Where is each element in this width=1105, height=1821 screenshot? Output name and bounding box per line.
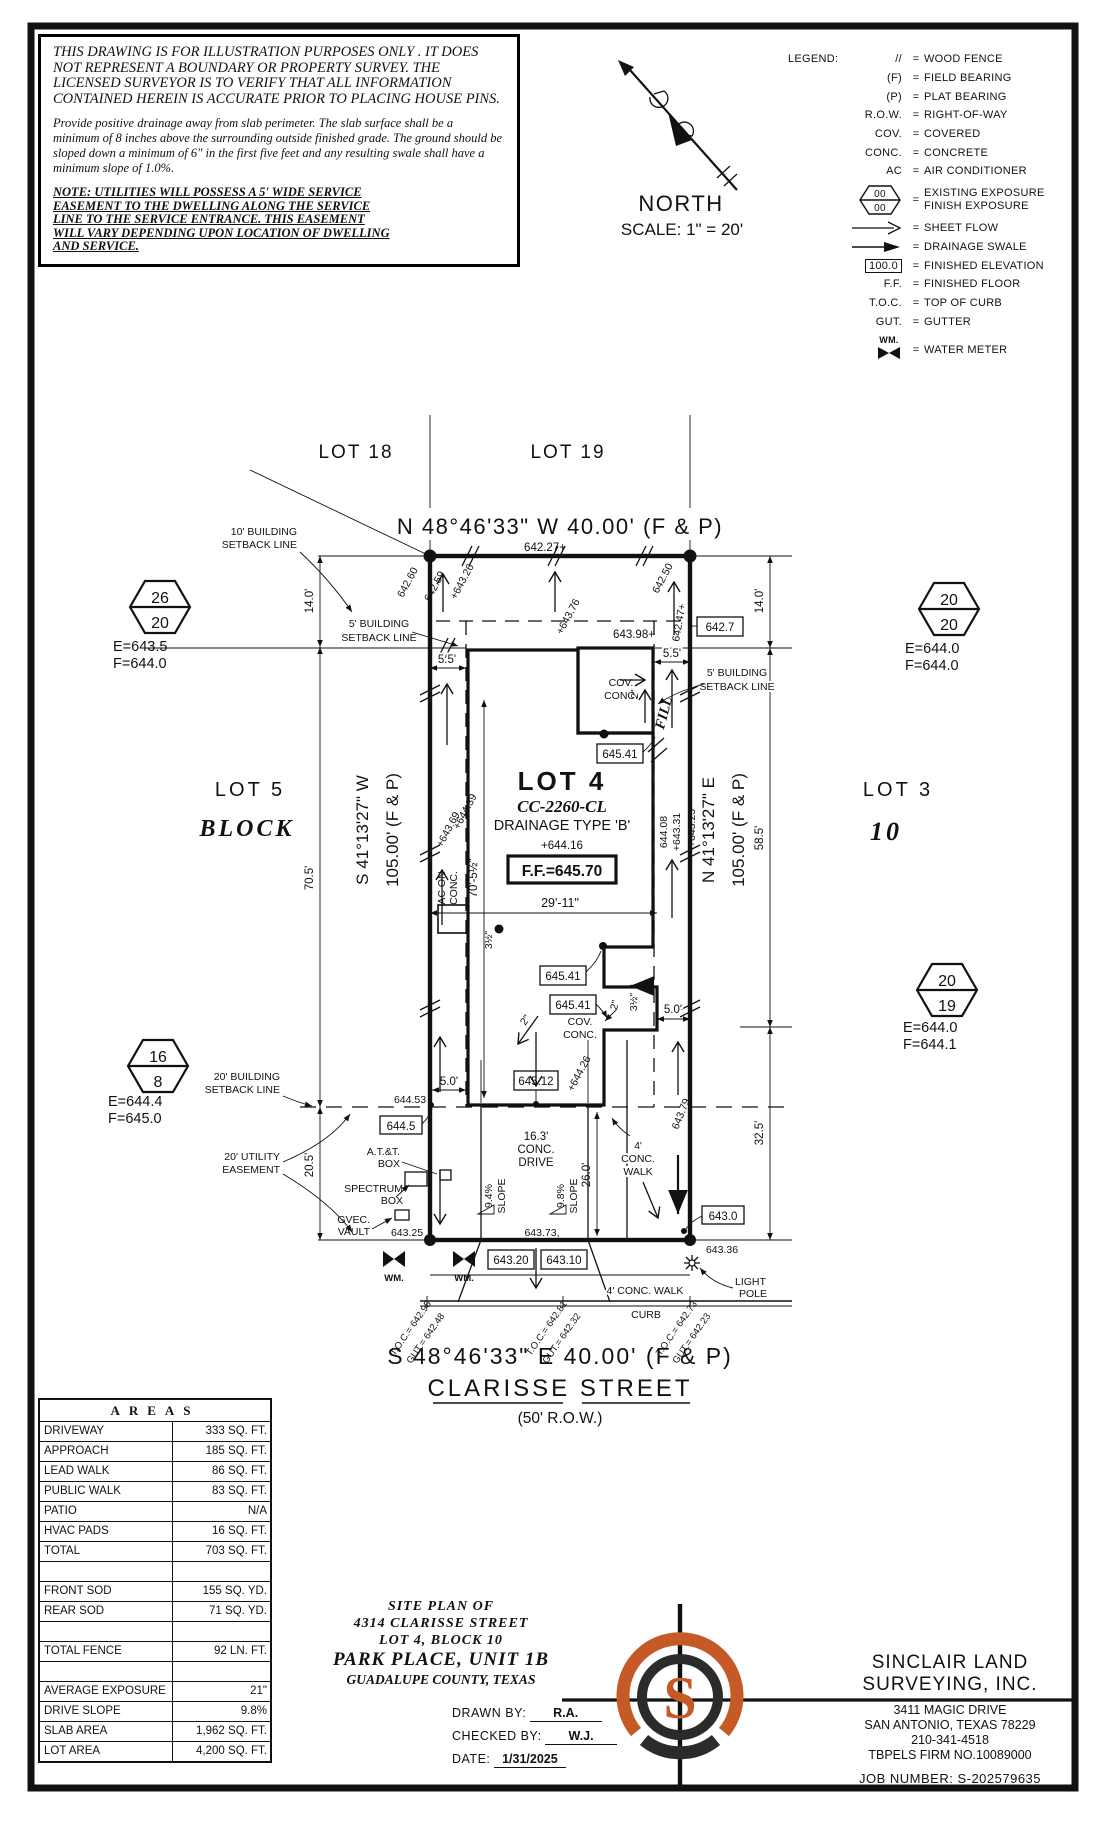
hex4-top: 20 bbox=[938, 973, 956, 990]
hex2-bottom: 20 bbox=[940, 617, 958, 634]
table-row-blank-2 bbox=[40, 1622, 270, 1642]
disclaimer-paragraph-1: THIS DRAWING IS FOR ILLUSTRATION PURPOSE… bbox=[53, 45, 507, 107]
hex1-bottom: 20 bbox=[151, 615, 169, 632]
block-word: BLOCK bbox=[198, 816, 294, 842]
table-row-average-exposure: AVERAGE EXPOSURE21" bbox=[40, 1682, 270, 1702]
gutter-symbol: GUT. bbox=[836, 316, 908, 328]
elev-642-7: 642.7 bbox=[706, 622, 735, 634]
surveyor-name: SINCLAIR LAND SURVEYING, INC. bbox=[828, 1652, 1072, 1696]
table-row-hvac-pads: HVAC PADS16 SQ. FT. bbox=[40, 1522, 270, 1542]
legend-row-plat-bearing: (P) = PLAT BEARING bbox=[788, 87, 1088, 106]
equals: = bbox=[908, 165, 924, 177]
table-row-front-sod: FRONT SOD155 SQ. YD. bbox=[40, 1582, 270, 1602]
legend-title: LEGEND: bbox=[788, 53, 836, 65]
legend-row-top-of-curb: T.O.C. = TOP OF CURB bbox=[788, 294, 1088, 313]
date-value: 1/31/2025 bbox=[494, 1752, 566, 1768]
dim-32-5: 32.5' bbox=[754, 1121, 766, 1146]
slope-98: 9.8% bbox=[555, 1184, 567, 1208]
lot3-label: LOT 3 bbox=[863, 779, 933, 801]
hex1-existing: E=643.5 bbox=[113, 639, 167, 655]
inch35-front: 3½" bbox=[628, 993, 640, 1012]
street-row: (50' R.O.W.) bbox=[518, 1410, 603, 1427]
block-number: 10 bbox=[870, 817, 902, 846]
table-row-blank-1 bbox=[40, 1562, 270, 1582]
drainage-swale-icon bbox=[836, 241, 908, 253]
att-line1: A.T.&T. bbox=[367, 1146, 400, 1158]
bearing-left-dir: S 41°13'27" W bbox=[353, 775, 372, 885]
elev-643-26: +643.26 bbox=[448, 562, 477, 602]
elev-643-76: +643.76 bbox=[554, 597, 583, 637]
equals: = bbox=[908, 91, 924, 103]
bearing-left-len: 105.00' (F & P) bbox=[383, 773, 402, 887]
elev-644-5: 644.5 bbox=[387, 1121, 416, 1133]
water-meter-2: WM. bbox=[454, 1273, 474, 1284]
street-name: CLARISSE STREET bbox=[427, 1375, 692, 1402]
elev-643-0: 643.0 bbox=[709, 1211, 738, 1223]
elev-643-20: 643.20 bbox=[493, 1255, 528, 1267]
gvec-line2: VAULT bbox=[338, 1226, 371, 1238]
areas-title: AREAS bbox=[40, 1400, 270, 1422]
ac-conc-label: CONC. bbox=[448, 871, 460, 905]
utility20-line2: EASEMENT bbox=[222, 1164, 280, 1176]
svg-text:00: 00 bbox=[874, 189, 886, 200]
title-line1: SITE PLAN OF bbox=[318, 1598, 564, 1615]
concrete-symbol: CONC. bbox=[836, 147, 908, 159]
legend-row-ac: AC = AIR CONDITIONER bbox=[788, 162, 1088, 181]
walk-conc: CONC. bbox=[621, 1153, 655, 1165]
surveyor-city: SAN ANTONIO, TEXAS 78229 bbox=[828, 1718, 1072, 1733]
cov-label-rear: COV. bbox=[609, 677, 634, 689]
dim-70-5: 70.5' bbox=[304, 866, 316, 891]
table-row-total: TOTAL703 SQ. FT. bbox=[40, 1542, 270, 1562]
elev-643-73: 643.73, bbox=[524, 1227, 559, 1239]
equals: = bbox=[908, 241, 924, 253]
title-lot-block: LOT 4, BLOCK 10 bbox=[318, 1632, 564, 1649]
elev-642-27: 642.27+ bbox=[524, 542, 566, 554]
dim-5-5-right: 5.5' bbox=[663, 648, 681, 660]
elev-644-53: 644.53 bbox=[394, 1094, 426, 1106]
dim-5-0-left: 5.0' bbox=[440, 1076, 458, 1088]
dim-5-0-right: 5.0' bbox=[664, 1004, 682, 1016]
water-meter-1: WM. bbox=[384, 1273, 404, 1284]
drive-label: DRIVE bbox=[518, 1157, 553, 1169]
row-symbol: R.O.W. bbox=[836, 109, 908, 121]
table-row-drive-slope: DRIVE SLOPE9.8% bbox=[40, 1702, 270, 1722]
legend-row-sheet-flow: = SHEET FLOW bbox=[788, 219, 1088, 238]
checked-by-value: W.J. bbox=[545, 1729, 617, 1745]
drawn-by-value: R.A. bbox=[530, 1706, 602, 1722]
walk-4ft: 4' bbox=[634, 1140, 642, 1152]
drawn-by-row: DRAWN BY: R.A. bbox=[452, 1706, 642, 1722]
disclaimer-note: NOTE: UTILITIES WILL POSSESS A 5' WIDE S… bbox=[53, 186, 507, 254]
date-row: DATE: 1/31/2025 bbox=[452, 1752, 642, 1768]
gvec-line1: GVEC. bbox=[337, 1214, 370, 1226]
ac-symbol: AC bbox=[836, 165, 908, 177]
table-row-driveway: DRIVEWAY333 SQ. FT. bbox=[40, 1422, 270, 1442]
hex2-finish: F=644.0 bbox=[905, 658, 959, 674]
job-number: JOB NUMBER: S-202579635 bbox=[828, 1771, 1072, 1786]
slope-word-2: SLOPE bbox=[568, 1178, 580, 1213]
setback10-line1: 10' BUILDING bbox=[231, 526, 297, 538]
legend-row-finished-floor: F.F. = FINISHED FLOOR bbox=[788, 275, 1088, 294]
slope-94: 9.4% bbox=[483, 1184, 495, 1208]
water-meter-icon: WM. bbox=[836, 335, 908, 364]
disclaimer-paragraph-2: Provide positive drainage away from slab… bbox=[53, 116, 507, 176]
setback20-line1: 20' BUILDING bbox=[214, 1071, 280, 1083]
drainage-type-label: DRAINAGE TYPE 'B' bbox=[494, 818, 631, 834]
wood-fence-symbol: // bbox=[836, 53, 908, 65]
sheet-flow-icon bbox=[836, 221, 908, 235]
curb-label: CURB bbox=[631, 1309, 661, 1321]
title-block: SITE PLAN OF 4314 CLARISSE STREET LOT 4,… bbox=[318, 1598, 564, 1689]
table-row-patio: PATION/A bbox=[40, 1502, 270, 1522]
surveyor-firm: TBPELS FIRM NO.10089000 bbox=[828, 1748, 1072, 1763]
disclaimer-box: THIS DRAWING IS FOR ILLUSTRATION PURPOSE… bbox=[38, 34, 520, 267]
hex1-finish: F=644.0 bbox=[113, 656, 167, 672]
exposure-values: 26 20 E=643.5 F=644.0 20 20 E=644.0 F=64… bbox=[108, 590, 959, 1127]
dim-58-5: 58.5' bbox=[754, 826, 766, 851]
lot5-label: LOT 5 bbox=[215, 779, 285, 801]
hex3-finish: F=645.0 bbox=[108, 1111, 162, 1127]
table-row-total-fence: TOTAL FENCE92 LN. FT. bbox=[40, 1642, 270, 1662]
elev-642-60: 642.60 bbox=[395, 565, 421, 599]
elev-644-39: +644.39 bbox=[451, 792, 480, 832]
dim-29-11: 29'-11" bbox=[541, 896, 579, 910]
elev-643-31: +643.31 bbox=[671, 813, 683, 851]
hex3-bottom: 8 bbox=[154, 1074, 163, 1091]
spectrum-line1: SPECTRUM bbox=[344, 1183, 403, 1195]
dim-14-left: 14.0' bbox=[304, 589, 316, 614]
elev-643-25r: +643.25 bbox=[686, 809, 698, 847]
covered-symbol: COV. bbox=[836, 128, 908, 140]
equals: = bbox=[908, 147, 924, 159]
elev-644-26: +644.26 bbox=[565, 1054, 594, 1094]
bearing-top: N 48°46'33" W 40.00' (F & P) bbox=[397, 514, 723, 539]
table-row-blank-3 bbox=[40, 1662, 270, 1682]
light-line2: POLE bbox=[739, 1288, 767, 1300]
setback5-right-line1: 5' BUILDING bbox=[707, 667, 767, 679]
hex1-top: 26 bbox=[151, 590, 169, 607]
pad-elevation: +644.16 bbox=[541, 840, 583, 852]
north-label: NORTH bbox=[638, 191, 723, 216]
dim-14-right: 14.0' bbox=[754, 589, 766, 614]
elev-642-50: 642.50 bbox=[650, 561, 676, 595]
exposure-hexagon-icon: 00 00 bbox=[836, 183, 908, 217]
legend-row-field-bearing: (F) = FIELD BEARING bbox=[788, 69, 1088, 88]
legend: LEGEND: // = WOOD FENCE (F) = FIELD BEAR… bbox=[788, 50, 1088, 369]
finished-floor-label: F.F.=645.70 bbox=[522, 863, 603, 880]
dimension-labels: 14.0' 70.5' 20.5' 14.0' 58.5' 32.5' 5.5'… bbox=[304, 589, 766, 1188]
cov-label-front: COV. bbox=[568, 1016, 593, 1028]
equals: = bbox=[908, 278, 924, 290]
setback20-line2: SETBACK LINE bbox=[205, 1084, 280, 1096]
dim-26-0: 26.0' bbox=[581, 1163, 593, 1188]
legend-row-drainage-swale: = DRAINAGE SWALE bbox=[788, 238, 1088, 257]
legend-row-covered: COV. = COVERED bbox=[788, 125, 1088, 144]
elev-645-41-c: 645.41 bbox=[555, 1000, 590, 1012]
hex4-bottom: 19 bbox=[938, 998, 956, 1015]
legend-row-row: R.O.W. = RIGHT-OF-WAY bbox=[788, 106, 1088, 125]
lot4-label: LOT 4 bbox=[518, 766, 607, 796]
att-line2: BOX bbox=[378, 1158, 400, 1170]
elev-644-08: 644.08 bbox=[658, 816, 670, 848]
setback5-right-line2: SETBACK LINE bbox=[699, 681, 774, 693]
table-row-lead-walk: LEAD WALK86 SQ. FT. bbox=[40, 1462, 270, 1482]
equals: = bbox=[908, 260, 924, 272]
title-county: GUADALUPE COUNTY, TEXAS bbox=[318, 1671, 564, 1689]
equals: = bbox=[908, 72, 924, 84]
surveyor-street: 3411 MAGIC DRIVE bbox=[828, 1703, 1072, 1718]
dim-5-5-left: 5.5' bbox=[438, 654, 456, 666]
setback5-left-line2: SETBACK LINE bbox=[341, 632, 416, 644]
inch2-rear: 2" bbox=[629, 689, 641, 699]
elev-643-10: 643.10 bbox=[546, 1255, 581, 1267]
title-subdivision: PARK PLACE, UNIT 1B bbox=[318, 1649, 564, 1671]
finished-elevation-symbol: 100.0 bbox=[836, 260, 908, 272]
spectrum-line2: BOX bbox=[381, 1195, 403, 1207]
legend-row-gutter: GUT. = GUTTER bbox=[788, 312, 1088, 331]
equals: = bbox=[908, 222, 924, 234]
bearing-right-len: 105.00' (F & P) bbox=[729, 773, 748, 887]
conc-label-front: CONC. bbox=[563, 1029, 597, 1041]
street-walk-label: 4' CONC. WALK bbox=[607, 1285, 684, 1297]
svg-text:00: 00 bbox=[874, 203, 886, 214]
lot18-label: LOT 18 bbox=[318, 442, 393, 463]
bearing-right-dir: N 41°13'27" E bbox=[699, 777, 718, 883]
field-bearing-symbol: (F) bbox=[836, 72, 908, 84]
equals: = bbox=[908, 344, 924, 356]
light-line1: LIGHT bbox=[735, 1276, 767, 1288]
equals: = bbox=[908, 53, 924, 65]
inch2-front: 2" bbox=[608, 999, 622, 1012]
equals: = bbox=[908, 297, 924, 309]
legend-row-water-meter: WM. = WATER METER bbox=[788, 331, 1088, 369]
legend-row-finished-elevation: 100.0 = FINISHED ELEVATION bbox=[788, 256, 1088, 275]
table-row-rear-sod: REAR SOD71 SQ. YD. bbox=[40, 1602, 270, 1622]
ff-symbol: F.F. bbox=[836, 278, 908, 290]
table-row-lot-area: LOT AREA4,200 SQ. FT. bbox=[40, 1742, 270, 1761]
equals: = bbox=[908, 194, 924, 206]
scale-label: SCALE: 1" = 20' bbox=[621, 220, 743, 239]
table-row-approach: APPROACH185 SQ. FT. bbox=[40, 1442, 270, 1462]
logo-letter: S bbox=[663, 1665, 696, 1731]
slope-word-1: SLOPE bbox=[496, 1178, 508, 1213]
elev-643-25: 643.25 bbox=[391, 1227, 423, 1239]
legend-row-wood-fence: LEGEND: // = WOOD FENCE bbox=[788, 50, 1088, 69]
title-address: 4314 CLARISSE STREET bbox=[318, 1615, 564, 1632]
drawn-by-block: DRAWN BY: R.A. CHECKED BY: W.J. DATE: 1/… bbox=[452, 1706, 642, 1775]
hex4-finish: F=644.1 bbox=[903, 1037, 957, 1053]
plan-id-label: CC-2260-CL bbox=[517, 797, 607, 816]
elev-643-98: 643.98+ bbox=[613, 629, 655, 641]
equals: = bbox=[908, 109, 924, 121]
toc-symbol: T.O.C. bbox=[836, 297, 908, 309]
elev-642-47: 642.47+ bbox=[670, 603, 688, 643]
dim-20-5: 20.5' bbox=[304, 1153, 316, 1178]
plat-bearing-symbol: (P) bbox=[836, 91, 908, 103]
north-arrow-icon: NORTH SCALE: 1" = 20' bbox=[618, 60, 743, 239]
equals: = bbox=[908, 128, 924, 140]
walk-word: WALK bbox=[623, 1166, 652, 1178]
legend-row-concrete: CONC. = CONCRETE bbox=[788, 143, 1088, 162]
flow-arrows bbox=[440, 572, 678, 1288]
hex3-existing: E=644.4 bbox=[108, 1094, 162, 1110]
legend-row-exposure: 00 00 = EXISTING EXPOSURE FINISH EXPOSUR… bbox=[788, 181, 1088, 219]
checked-by-row: CHECKED BY: W.J. bbox=[452, 1729, 642, 1745]
setback10-line2: SETBACK LINE bbox=[222, 539, 297, 551]
elev-645-41-a: 645.41 bbox=[602, 749, 637, 761]
drive-conc-label: CONC. bbox=[517, 1144, 554, 1156]
hex3-top: 16 bbox=[149, 1049, 167, 1066]
dim-70-5h: 70'-5½" bbox=[468, 859, 480, 898]
surveyor-phone: 210-341-4518 bbox=[828, 1733, 1072, 1748]
table-row-slab-area: SLAB AREA1,962 SQ. FT. bbox=[40, 1722, 270, 1742]
hex2-top: 20 bbox=[940, 592, 958, 609]
table-row-public-walk: PUBLIC WALK83 SQ. FT. bbox=[40, 1482, 270, 1502]
elev-642-59: 642.59 bbox=[422, 569, 448, 603]
elev-643-36: 643.36 bbox=[706, 1244, 738, 1256]
lot19-label: LOT 19 bbox=[530, 442, 605, 463]
elev-645-41-b: 645.41 bbox=[545, 971, 580, 983]
surveyor-address: 3411 MAGIC DRIVE SAN ANTONIO, TEXAS 7822… bbox=[828, 1703, 1072, 1763]
drive-width-label: 16.3' bbox=[524, 1131, 549, 1143]
inch35-step: 3½" bbox=[483, 931, 495, 950]
hex2-existing: E=644.0 bbox=[905, 641, 959, 657]
site-plan-sheet: NORTH SCALE: 1" = 20' bbox=[0, 0, 1105, 1821]
hex4-existing: E=644.0 bbox=[903, 1020, 957, 1036]
utility20-line1: 20' UTILITY bbox=[224, 1151, 280, 1163]
equals: = bbox=[908, 316, 924, 328]
bearing-bottom: S 48°46'33" E 40.00' (F & P) bbox=[387, 1343, 733, 1369]
areas-table: AREAS DRIVEWAY333 SQ. FT. APPROACH185 SQ… bbox=[38, 1398, 272, 1763]
street-labels: S 48°46'33" E 40.00' (F & P) CLARISSE ST… bbox=[387, 1343, 733, 1427]
setback5-left-line1: 5' BUILDING bbox=[349, 618, 409, 630]
